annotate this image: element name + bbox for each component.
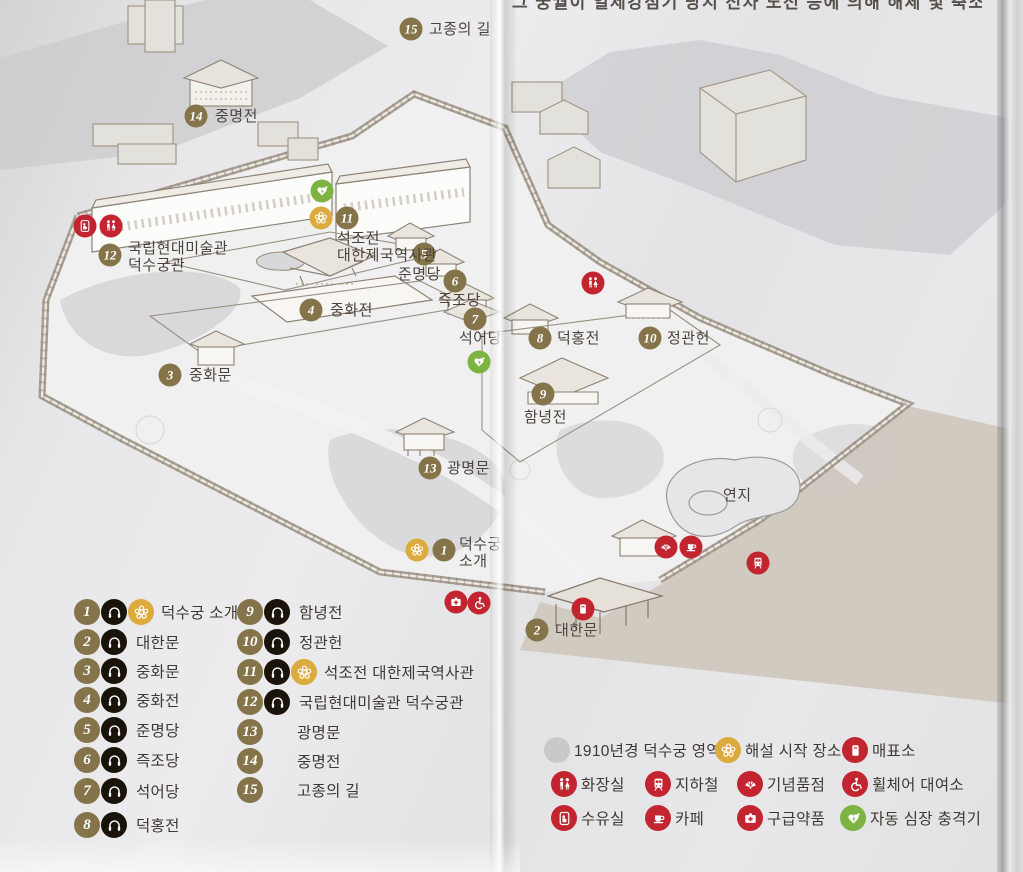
audio-guide-icon bbox=[101, 717, 127, 743]
map-marker-3: 3 bbox=[159, 364, 182, 387]
tour-start-icon bbox=[406, 539, 429, 562]
wheelchair-icon bbox=[842, 771, 868, 797]
legend-site-10-number: 10 bbox=[237, 629, 263, 655]
legend-facility-label-wheelchair: 휠체어 대여소 bbox=[872, 773, 964, 795]
legend-site-4-number: 4 bbox=[74, 687, 100, 713]
map-marker-6-label: 즉조당 bbox=[438, 292, 481, 309]
legend-site-4-label: 중화전 bbox=[136, 689, 180, 711]
map-marker-13: 13 bbox=[419, 457, 442, 480]
brochure-map-photo: 그 궁궐이 일제강점기 당시 전차 노선 등에 의해 해체 및 축소되었다. 연… bbox=[0, 0, 1023, 872]
legend-site-5-label: 준명당 bbox=[136, 719, 180, 741]
souvenir-icon bbox=[737, 771, 763, 797]
map-artwork bbox=[0, 0, 1023, 872]
wheelchair-icon bbox=[468, 592, 491, 615]
legend-site-7-label: 석어당 bbox=[136, 780, 180, 802]
map-marker-3-label: 중화문 bbox=[189, 367, 232, 384]
legend-site-1-label: 덕수궁 소개 bbox=[161, 601, 238, 623]
cafe-icon bbox=[680, 536, 703, 559]
legend-site-10-label: 정관헌 bbox=[299, 631, 343, 653]
legend-site-1-number: 1 bbox=[74, 599, 100, 625]
map-marker-15: 15 bbox=[400, 18, 423, 41]
legend-site-6-number: 6 bbox=[74, 747, 100, 773]
map-marker-15-label: 고종의 길 bbox=[429, 21, 491, 38]
legend-site-14-number: 14 bbox=[237, 748, 263, 774]
map-marker-4: 4 bbox=[300, 299, 323, 322]
map-marker-11-label: 석조전대한제국역사관 bbox=[337, 230, 437, 264]
subway-icon bbox=[645, 771, 671, 797]
map-marker-12: 12 bbox=[99, 244, 122, 267]
legend-site-8-label: 덕홍전 bbox=[136, 814, 180, 836]
audio-guide-icon bbox=[101, 747, 127, 773]
map-marker-9-label: 함녕전 bbox=[524, 409, 567, 426]
map-marker-10: 10 bbox=[639, 327, 662, 350]
map-marker-13-label: 광명문 bbox=[447, 460, 490, 477]
legend-facility-label-toilet: 화장실 bbox=[581, 773, 625, 795]
legend-facility-label-ticket: 매표소 bbox=[872, 739, 916, 761]
legend-facility-label-tour-start: 해설 시작 장소 bbox=[745, 739, 842, 761]
aed-icon bbox=[840, 805, 866, 831]
legend-site-15-number: 15 bbox=[237, 777, 263, 803]
toilet-icon bbox=[100, 215, 123, 238]
audio-guide-icon bbox=[101, 812, 127, 838]
audio-guide-icon bbox=[101, 599, 127, 625]
map-marker-7: 7 bbox=[464, 308, 487, 331]
legend-site-13-number: 13 bbox=[237, 719, 263, 745]
legend-facility-label-first-aid: 구급약품 bbox=[767, 807, 825, 829]
first-aid-icon bbox=[737, 805, 763, 831]
map-marker-12-label: 국립현대미술관덕수궁관 bbox=[128, 240, 228, 274]
legend-site-6-label: 즉조당 bbox=[136, 749, 180, 771]
legend-site-8-number: 8 bbox=[74, 812, 100, 838]
map-marker-6: 6 bbox=[444, 270, 467, 293]
map-marker-1-label: 덕수궁소개 bbox=[459, 536, 502, 570]
legend-facility-label-cafe: 카페 bbox=[675, 807, 704, 829]
map-marker-10-label: 정관헌 bbox=[667, 330, 710, 347]
legend-site-11-label: 석조전 대한제국역사관 bbox=[324, 661, 474, 683]
toilet-icon bbox=[551, 771, 577, 797]
first-aid-icon bbox=[445, 591, 468, 614]
audio-guide-icon bbox=[101, 778, 127, 804]
legend-facility-label-area: 1910년경 덕수궁 영역 bbox=[574, 739, 721, 761]
legend-site-13-label: 광명문 bbox=[297, 721, 341, 743]
audio-guide-icon bbox=[264, 659, 290, 685]
audio-guide-icon bbox=[101, 658, 127, 684]
legend-facility-label-souvenir: 기념품점 bbox=[767, 773, 825, 795]
clipped-caption: 그 궁궐이 일제강점기 당시 전차 노선 등에 의해 해체 및 축소되었다. bbox=[512, 0, 982, 13]
map-marker-8-label: 덕홍전 bbox=[557, 330, 600, 347]
audio-guide-icon bbox=[264, 689, 290, 715]
map-marker-11: 11 bbox=[336, 207, 359, 230]
legend-facility-label-subway: 지하철 bbox=[675, 773, 719, 795]
tour-start-icon bbox=[310, 207, 333, 230]
map-marker-14: 14 bbox=[185, 105, 208, 128]
aed-icon bbox=[311, 180, 334, 203]
pond-label: 연지 bbox=[723, 487, 752, 504]
legend-site-3-label: 중화문 bbox=[136, 660, 180, 682]
cafe-icon bbox=[645, 805, 671, 831]
legend-site-5-number: 5 bbox=[74, 717, 100, 743]
legend-site-14-label: 중명전 bbox=[297, 750, 341, 772]
nursing-room-icon bbox=[551, 805, 577, 831]
legend-site-3-number: 3 bbox=[74, 658, 100, 684]
legend-site-9-number: 9 bbox=[237, 599, 263, 625]
nursing-room-icon bbox=[74, 215, 97, 238]
tour-start-icon bbox=[128, 599, 154, 625]
map-marker-14-label: 중명전 bbox=[215, 108, 258, 125]
map-marker-7-label: 석어당 bbox=[459, 330, 502, 347]
clipped-caption-text: 그 궁궐이 일제강점기 당시 전차 노선 등에 의해 해체 및 축소되었다. bbox=[512, 0, 982, 13]
map-marker-9: 9 bbox=[532, 383, 555, 406]
map-marker-5-label: 준명당 bbox=[398, 266, 441, 283]
souvenir-icon bbox=[655, 536, 678, 559]
legend-site-15-label: 고종의 길 bbox=[297, 779, 360, 801]
audio-guide-icon bbox=[264, 599, 290, 625]
map-marker-2-label: 대한문 bbox=[555, 622, 598, 639]
map-marker-1: 1 bbox=[433, 539, 456, 562]
legend-site-12-number: 12 bbox=[237, 689, 263, 715]
audio-guide-icon bbox=[101, 687, 127, 713]
legend-site-2-number: 2 bbox=[74, 629, 100, 655]
aed-icon bbox=[468, 351, 491, 374]
tour-start-icon bbox=[715, 737, 741, 763]
toilet-icon bbox=[582, 272, 605, 295]
legend-site-11-number: 11 bbox=[237, 659, 263, 685]
ticket-icon bbox=[842, 737, 868, 763]
area-icon bbox=[544, 737, 570, 763]
audio-guide-icon bbox=[264, 629, 290, 655]
audio-guide-icon bbox=[101, 629, 127, 655]
map-marker-8: 8 bbox=[529, 327, 552, 350]
map-marker-2: 2 bbox=[526, 619, 549, 642]
legend-facility-label-nursing-room: 수유실 bbox=[581, 807, 625, 829]
legend-site-12-label: 국립현대미술관 덕수궁관 bbox=[299, 691, 464, 713]
tour-start-icon bbox=[291, 659, 317, 685]
legend-facility-label-aed: 자동 심장 충격기 bbox=[870, 807, 981, 829]
legend-site-9-label: 함녕전 bbox=[299, 601, 343, 623]
legend-site-2-label: 대한문 bbox=[136, 631, 180, 653]
ticket-icon bbox=[572, 598, 595, 621]
legend-site-7-number: 7 bbox=[74, 778, 100, 804]
subway-icon bbox=[747, 552, 770, 575]
map-marker-4-label: 중화전 bbox=[330, 302, 373, 319]
